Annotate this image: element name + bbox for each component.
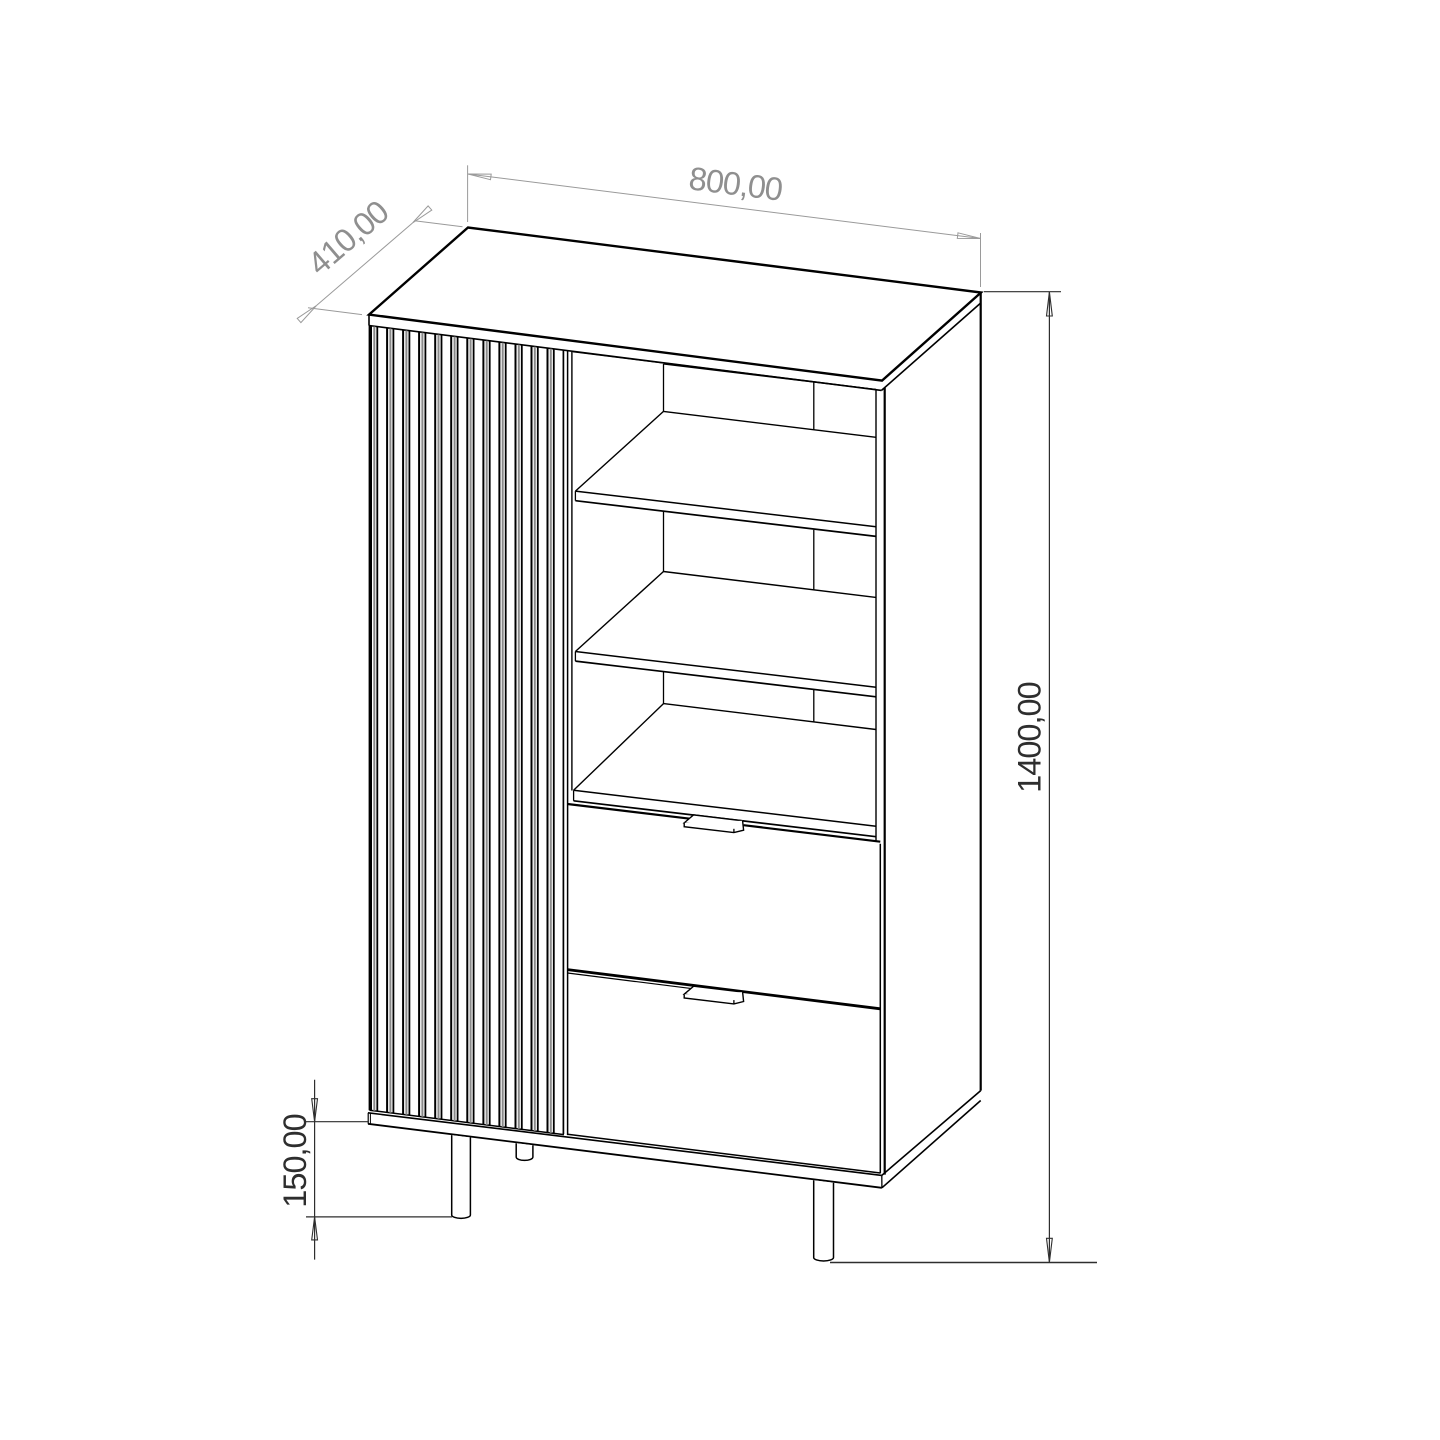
svg-text:150,00: 150,00: [277, 1114, 313, 1207]
svg-text:1400,00: 1400,00: [1012, 682, 1048, 792]
